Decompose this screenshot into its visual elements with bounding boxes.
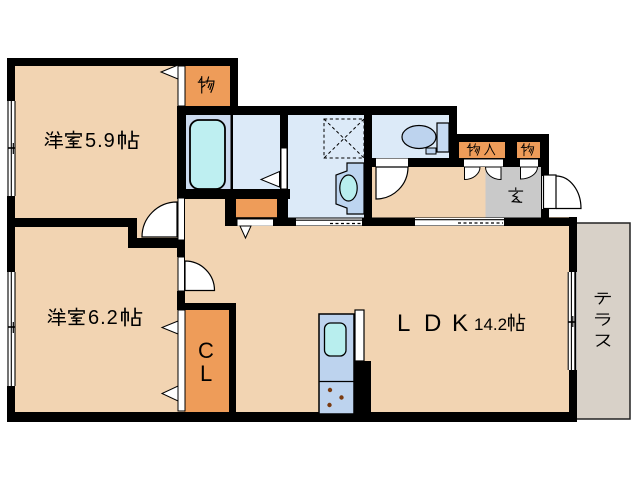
svg-text:K: K <box>452 310 468 337</box>
svg-text:14.2: 14.2 <box>474 315 507 334</box>
svg-text:L: L <box>200 361 212 386</box>
svg-text:6.2: 6.2 <box>88 307 119 329</box>
svg-text:L: L <box>397 310 410 337</box>
svg-text:5.9: 5.9 <box>85 130 116 152</box>
svg-text:C: C <box>198 338 214 363</box>
svg-text:D: D <box>424 310 441 337</box>
